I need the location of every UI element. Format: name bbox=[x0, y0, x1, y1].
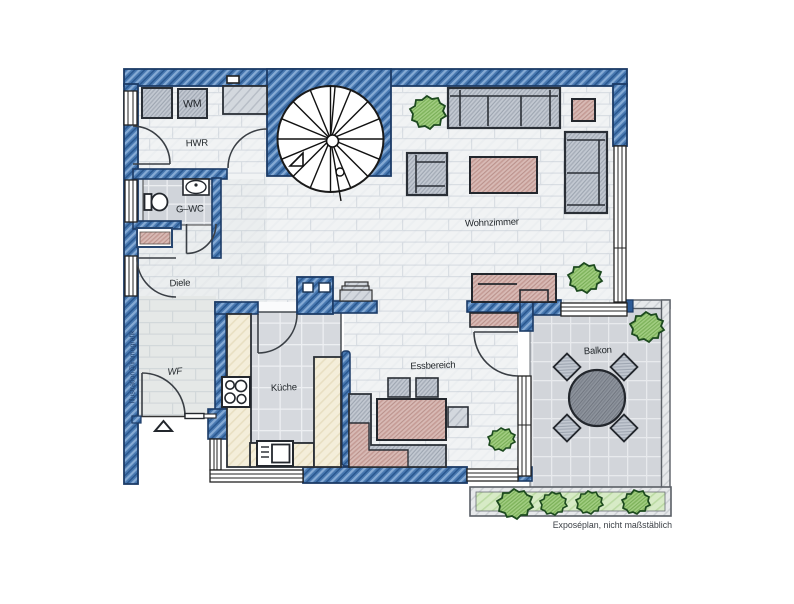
svg-text:Balkon: Balkon bbox=[584, 345, 612, 357]
svg-text:WM: WM bbox=[183, 98, 202, 111]
svg-text:Illustration@immografik: Illustration@immografik bbox=[130, 330, 137, 404]
svg-text:Küche: Küche bbox=[271, 382, 297, 394]
svg-text:HWR: HWR bbox=[186, 138, 209, 150]
svg-text:Wohnzimmer: Wohnzimmer bbox=[465, 217, 519, 230]
svg-text:Exposéplan, nicht maßstäblich: Exposéplan, nicht maßstäblich bbox=[553, 520, 672, 530]
svg-text:Essbereich: Essbereich bbox=[410, 360, 455, 373]
svg-text:G–WC: G–WC bbox=[176, 203, 204, 215]
svg-text:WF: WF bbox=[167, 366, 183, 378]
svg-text:Diele: Diele bbox=[169, 278, 190, 290]
